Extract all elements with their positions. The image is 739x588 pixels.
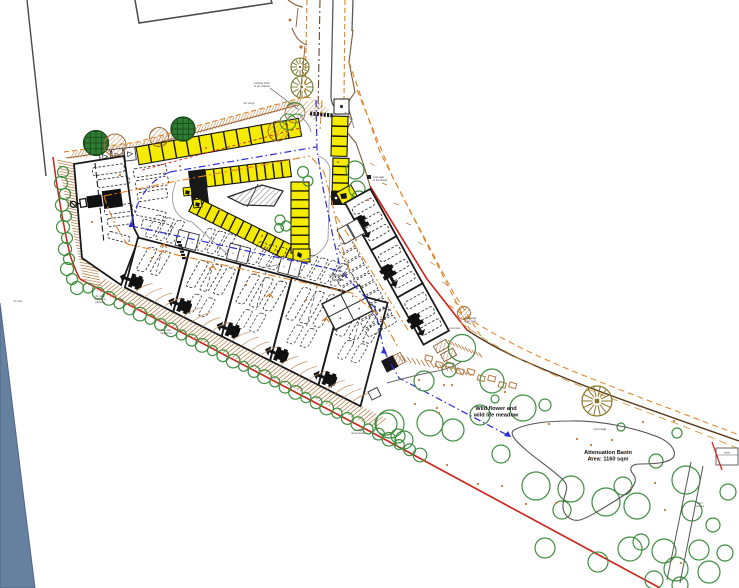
- svg-text:close board: close board: [351, 431, 365, 435]
- svg-text:hedgerow: hedgerow: [160, 331, 172, 335]
- svg-text:Area: 1160 sqm: Area: 1160 sqm: [587, 457, 628, 463]
- svg-text:to be kept: to be kept: [464, 319, 476, 323]
- svg-text:2m acc: 2m acc: [14, 299, 23, 303]
- svg-text:planting: planting: [95, 300, 105, 304]
- svg-text:to be closed: to be closed: [373, 178, 388, 182]
- svg-text:spaces: spaces: [332, 278, 344, 282]
- svg-text:track: track: [724, 451, 730, 455]
- svg-text:to be retained: to be retained: [254, 84, 270, 88]
- svg-text:Attenuation Basin: Attenuation Basin: [584, 450, 632, 456]
- svg-text:exist hedge: exist hedge: [593, 427, 607, 431]
- svg-text:wild life meadow: wild life meadow: [473, 413, 519, 419]
- svg-text:Wild flower and: Wild flower and: [475, 406, 517, 412]
- svg-text:access: access: [696, 505, 705, 508]
- svg-text:exist gate: exist gate: [449, 326, 461, 330]
- svg-text:2m verge: 2m verge: [244, 101, 255, 105]
